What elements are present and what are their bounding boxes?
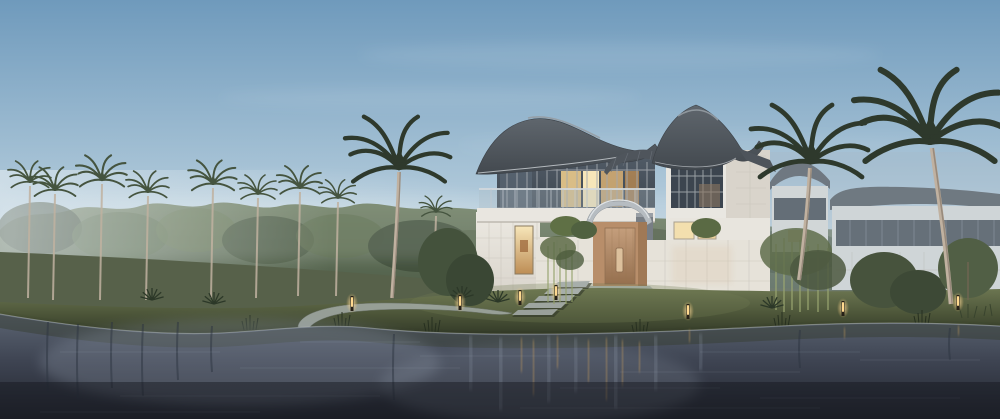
warm-light-reflection	[557, 336, 558, 368]
warm-light-reflection	[844, 328, 845, 338]
bollard-core	[957, 296, 959, 306]
door-portal-shade	[638, 222, 647, 286]
trunk-reflection-streak	[799, 330, 800, 368]
pale-reflection-streak	[470, 336, 472, 390]
warm-light-reflection	[958, 326, 959, 335]
bollard-core	[351, 297, 353, 307]
bollard-light	[346, 293, 358, 313]
warm-light-reflection	[588, 340, 589, 382]
bollard-core	[687, 305, 689, 315]
warm-light-reflection	[521, 338, 522, 372]
bollard-core	[555, 286, 557, 296]
trunk-reflection-streak	[111, 322, 112, 388]
architectural-rendering	[0, 0, 1000, 419]
bollard-light	[837, 298, 849, 318]
bollard-light	[550, 282, 562, 302]
pale-reflection-streak	[655, 336, 657, 390]
bollard-core	[459, 296, 461, 306]
door-handle[interactable]	[616, 248, 623, 272]
bollard-light	[682, 301, 694, 321]
trunk-reflection-streak	[177, 322, 178, 380]
trunk-reflection-streak	[211, 326, 212, 372]
bollard-light	[454, 292, 466, 312]
warm-light-reflection	[689, 330, 690, 342]
warm-light-reflection	[639, 342, 640, 372]
bollard-core	[519, 291, 521, 301]
trunk-reflection-streak	[47, 322, 48, 392]
water-bottom-vignette	[0, 382, 1000, 419]
tower-lit-window-1	[674, 222, 694, 239]
bollard-light	[514, 287, 526, 307]
bollard-core	[842, 302, 844, 312]
trunk-reflection-streak	[949, 328, 950, 360]
warm-wall-spill	[672, 246, 732, 284]
tower-interior-glow	[699, 184, 720, 207]
left-wing-artwork	[520, 240, 528, 252]
bollard-light	[952, 292, 964, 312]
warm-light-reflection	[622, 340, 623, 386]
